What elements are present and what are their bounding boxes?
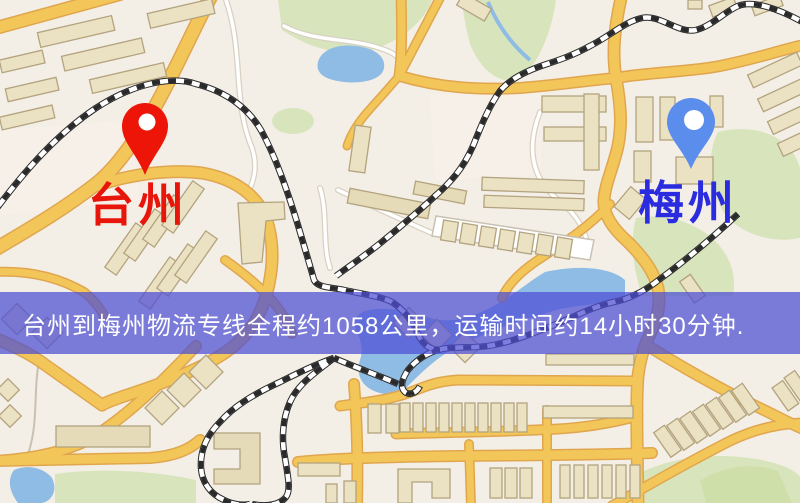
- logistics-map-image: 台州到梅州物流专线全程约1058公里，运输时间约14小时30分钟. 台州 梅州: [0, 0, 800, 503]
- map-base: [0, 0, 800, 503]
- destination-pin-icon[interactable]: [664, 96, 718, 174]
- destination-city-label: 梅州: [638, 181, 738, 227]
- origin-city-label: 台州: [88, 183, 188, 229]
- origin-pin-icon[interactable]: [118, 100, 172, 178]
- route-info-banner: 台州到梅州物流专线全程约1058公里，运输时间约14小时30分钟.: [0, 292, 800, 354]
- route-info-text: 台州到梅州物流专线全程约1058公里，运输时间约14小时30分钟.: [22, 306, 744, 341]
